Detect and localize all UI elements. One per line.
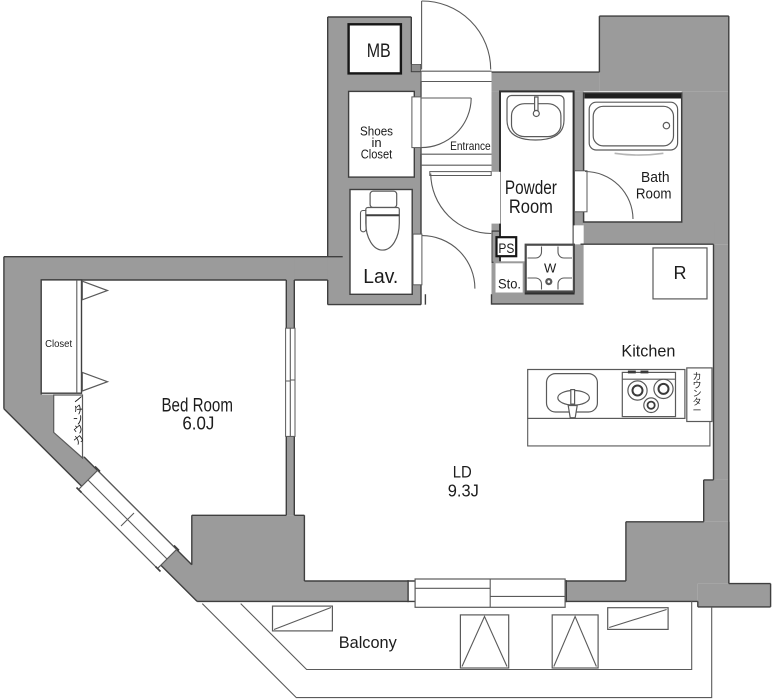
- svg-text:W: W: [544, 261, 557, 276]
- svg-text:ー: ー: [692, 406, 701, 416]
- svg-text:Closet: Closet: [45, 338, 72, 350]
- svg-text:MB: MB: [367, 41, 391, 62]
- svg-text:Room: Room: [509, 197, 553, 218]
- svg-text:R: R: [674, 263, 687, 283]
- svg-text:LD: LD: [453, 463, 472, 482]
- svg-text:Kitchen: Kitchen: [621, 342, 675, 361]
- svg-text:Powder: Powder: [505, 178, 558, 199]
- svg-text:Sto.: Sto.: [498, 277, 521, 292]
- svg-text:Room: Room: [636, 186, 672, 203]
- svg-text:Balcony: Balcony: [339, 634, 398, 652]
- svg-text:9.3J: 9.3J: [448, 481, 479, 501]
- svg-text:6.0J: 6.0J: [182, 414, 214, 434]
- svg-text:Lav.: Lav.: [363, 266, 398, 288]
- svg-text:Bath: Bath: [641, 169, 670, 186]
- svg-text:Entrance: Entrance: [450, 139, 491, 153]
- svg-text:PS: PS: [498, 240, 514, 256]
- svg-text:Closet: Closet: [361, 147, 393, 162]
